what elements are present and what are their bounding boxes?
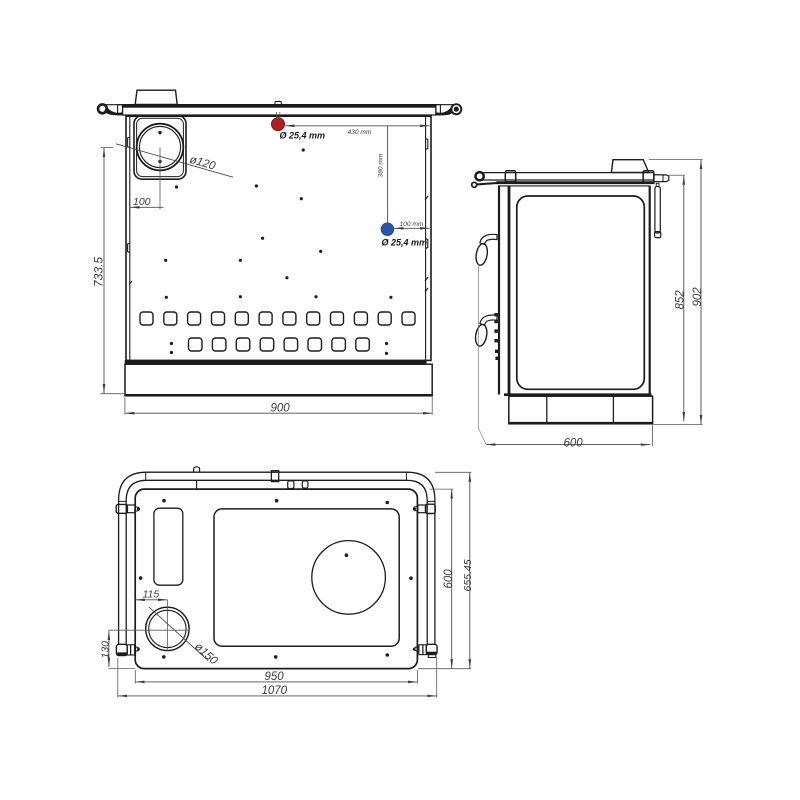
svg-text:Ø 25,4 mm: Ø 25,4 mm: [280, 130, 326, 140]
svg-text:902: 902: [692, 287, 704, 307]
svg-text:900: 900: [271, 403, 291, 415]
svg-text:1070: 1070: [262, 685, 288, 697]
svg-text:100 mm: 100 mm: [400, 221, 424, 228]
svg-text:130: 130: [99, 641, 111, 659]
svg-text:115: 115: [143, 589, 160, 601]
svg-text:655.45: 655.45: [462, 559, 474, 591]
svg-text:430 mm: 430 mm: [348, 129, 372, 136]
svg-text:852: 852: [675, 290, 687, 310]
svg-text:600: 600: [443, 569, 455, 589]
svg-text:100: 100: [133, 196, 151, 208]
svg-text:380 mm: 380 mm: [378, 153, 385, 177]
svg-text:Ø 25,4 mm: Ø 25,4 mm: [382, 237, 428, 247]
svg-text:600: 600: [564, 438, 584, 450]
svg-text:733.5: 733.5: [91, 257, 105, 287]
svg-text:950: 950: [265, 671, 285, 683]
